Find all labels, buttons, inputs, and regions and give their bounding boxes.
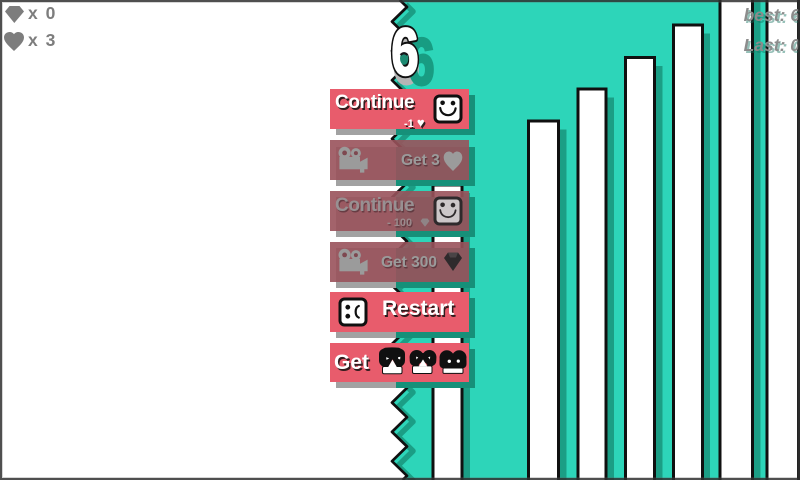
svg-text:6: 6 [392,15,419,89]
